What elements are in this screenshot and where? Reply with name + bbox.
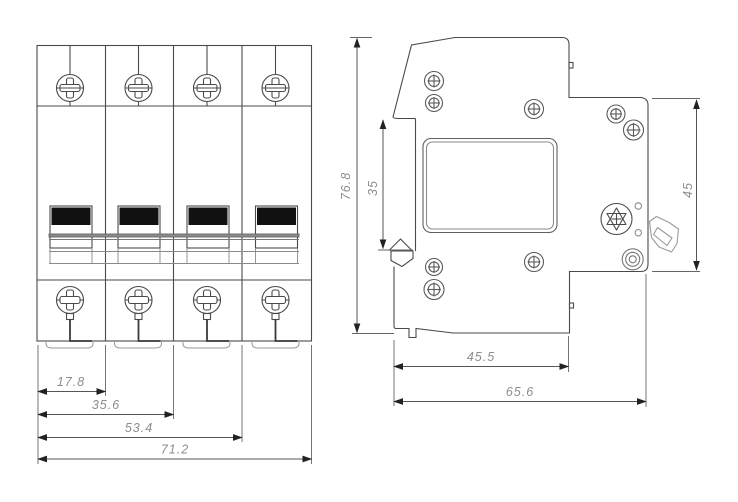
screw-icon bbox=[607, 105, 625, 123]
side-toggle-handle bbox=[650, 217, 679, 253]
screw-icon bbox=[426, 259, 443, 276]
breaker-dimension-drawing: 17.8 35.6 53.4 71.2 bbox=[0, 0, 738, 502]
dim-label-right-height: 45 bbox=[681, 182, 695, 198]
dim-label-total-width: 71.2 bbox=[161, 443, 189, 457]
bottom-terminal-screws bbox=[57, 287, 298, 342]
screw-icon bbox=[424, 280, 444, 300]
terminal-tabs bbox=[46, 342, 299, 348]
case-screws bbox=[424, 72, 644, 300]
pivot-hole bbox=[635, 230, 641, 236]
screw-icon bbox=[57, 287, 93, 342]
din-clip-arrow bbox=[389, 239, 412, 251]
screw-icon bbox=[262, 287, 298, 342]
screw-icon bbox=[194, 287, 230, 342]
din-clip bbox=[391, 251, 413, 267]
dim-label-rail-recess: 35 bbox=[366, 180, 380, 196]
dim-label-pitch-2: 35.6 bbox=[92, 398, 120, 412]
top-terminal-screws bbox=[57, 46, 290, 107]
side-body-outline bbox=[393, 38, 648, 338]
screw-icon bbox=[426, 95, 443, 112]
screw-icon bbox=[57, 46, 84, 107]
technical-drawing-canvas: 17.8 35.6 53.4 71.2 bbox=[0, 0, 738, 502]
screw-icon bbox=[525, 253, 544, 272]
screw-icon bbox=[525, 100, 544, 119]
screw-icon bbox=[425, 72, 444, 91]
dim-label-depth-step: 45.5 bbox=[467, 350, 495, 364]
screw-icon bbox=[624, 120, 644, 140]
screw-icon bbox=[262, 46, 289, 107]
front-view-dimensions: 17.8 35.6 53.4 71.2 bbox=[38, 345, 312, 464]
dim-label-total-depth: 65.6 bbox=[506, 385, 534, 399]
front-view-drawing bbox=[37, 46, 312, 349]
rivet-rings bbox=[622, 249, 643, 270]
pivot-hole bbox=[635, 203, 641, 209]
label-plate bbox=[423, 139, 557, 233]
din-rail-recess bbox=[389, 117, 416, 267]
side-view-drawing bbox=[389, 38, 679, 338]
screw-icon bbox=[125, 287, 161, 342]
screw-icon bbox=[125, 46, 152, 107]
switch-shaft-star bbox=[601, 204, 632, 235]
housing-tab bbox=[570, 303, 574, 308]
side-view-dimensions: 76.8 35 45 45.5 65.6 bbox=[339, 38, 700, 408]
dim-label-pitch-3: 53.4 bbox=[125, 421, 153, 435]
dim-label-total-height: 76.8 bbox=[339, 172, 353, 200]
housing-tab bbox=[569, 63, 573, 69]
dim-label-pitch-1: 17.8 bbox=[57, 375, 85, 389]
screw-icon bbox=[194, 46, 221, 107]
